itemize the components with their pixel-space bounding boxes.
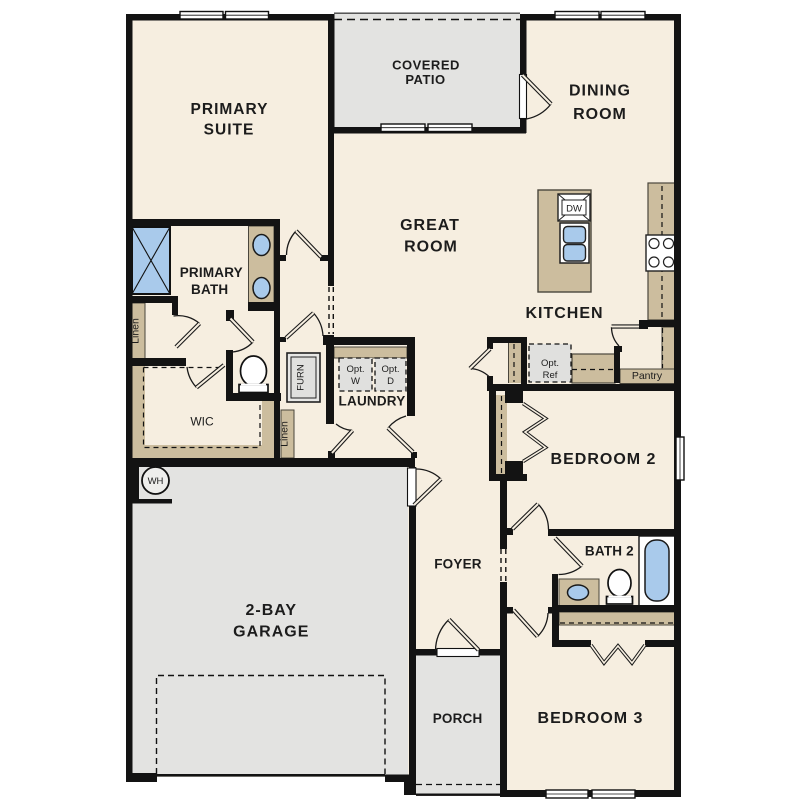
svg-text:D: D — [387, 376, 394, 387]
svg-text:Pantry: Pantry — [632, 370, 663, 382]
svg-text:PORCH: PORCH — [433, 711, 483, 726]
svg-text:W: W — [351, 376, 360, 387]
svg-text:KITCHEN: KITCHEN — [525, 305, 603, 322]
svg-text:BEDROOM 2: BEDROOM 2 — [551, 451, 657, 468]
svg-text:PATIO: PATIO — [405, 72, 445, 87]
svg-text:GARAGE: GARAGE — [233, 623, 309, 640]
svg-text:BEDROOM 3: BEDROOM 3 — [538, 710, 644, 727]
svg-text:Linen: Linen — [279, 421, 291, 447]
svg-text:BATH: BATH — [191, 282, 228, 297]
svg-text:GREAT: GREAT — [400, 217, 460, 234]
svg-text:ROOM: ROOM — [404, 238, 458, 255]
svg-text:Opt.: Opt. — [382, 364, 400, 375]
svg-text:LAUNDRY: LAUNDRY — [339, 394, 406, 409]
svg-text:ROOM: ROOM — [573, 106, 627, 123]
svg-text:Opt.: Opt. — [347, 364, 365, 375]
svg-text:SUITE: SUITE — [204, 122, 255, 139]
svg-text:PRIMARY: PRIMARY — [180, 265, 243, 280]
svg-text:COVERED: COVERED — [392, 57, 460, 72]
svg-text:Opt.: Opt. — [541, 358, 559, 369]
svg-text:PRIMARY: PRIMARY — [191, 101, 269, 118]
svg-text:WH: WH — [148, 476, 164, 487]
svg-text:WIC: WIC — [190, 414, 214, 428]
svg-text:BATH 2: BATH 2 — [585, 544, 634, 559]
svg-text:DW: DW — [566, 204, 582, 215]
svg-text:DINING: DINING — [569, 83, 631, 100]
svg-text:Ref: Ref — [543, 370, 558, 381]
svg-text:FURN: FURN — [296, 364, 307, 391]
svg-text:FOYER: FOYER — [434, 557, 482, 572]
svg-text:2-BAY: 2-BAY — [246, 602, 298, 619]
